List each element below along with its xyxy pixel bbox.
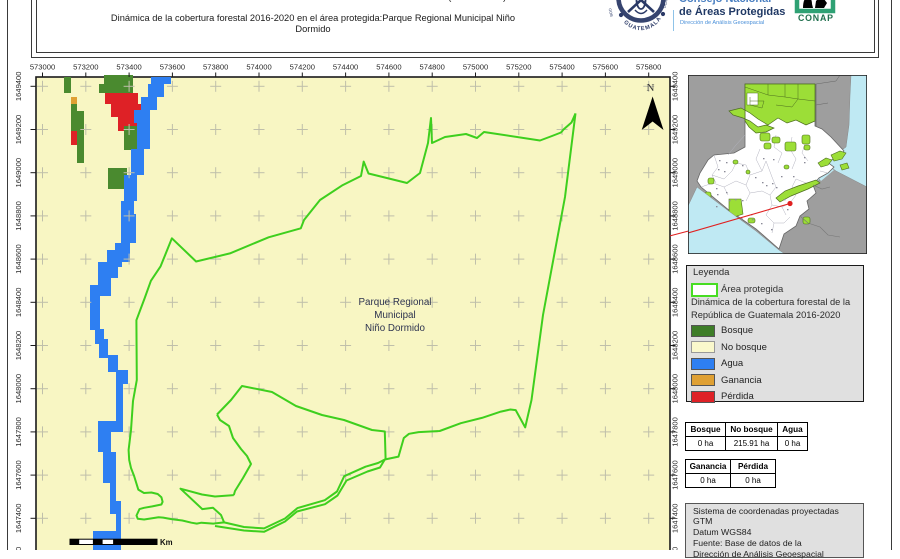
svg-text:575200: 575200 bbox=[506, 63, 531, 72]
svg-text:1647600: 1647600 bbox=[671, 460, 680, 490]
svg-text:1649000: 1649000 bbox=[14, 158, 23, 188]
svg-text:1648200: 1648200 bbox=[14, 331, 23, 361]
svg-text:OCA: OCA bbox=[663, 0, 669, 9]
svg-text:573800: 573800 bbox=[203, 63, 228, 72]
svg-text:574200: 574200 bbox=[290, 63, 315, 72]
svg-text:574400: 574400 bbox=[333, 63, 358, 72]
svg-text:573400: 573400 bbox=[116, 63, 141, 72]
svg-text:574600: 574600 bbox=[376, 63, 401, 72]
svg-text:1647600: 1647600 bbox=[14, 460, 23, 490]
svg-text:1648600: 1648600 bbox=[671, 244, 680, 274]
svg-text:1647400: 1647400 bbox=[671, 504, 680, 534]
svg-text:1648600: 1648600 bbox=[14, 244, 23, 274]
svg-text:1649400: 1649400 bbox=[671, 72, 680, 102]
svg-text:573200: 573200 bbox=[73, 63, 98, 72]
svg-text:Municipal: Municipal bbox=[374, 310, 415, 321]
svg-text:1647800: 1647800 bbox=[14, 417, 23, 447]
svg-text:CONAP: CONAP bbox=[798, 13, 834, 23]
svg-text:Niño Dormido: Niño Dormido bbox=[365, 323, 425, 334]
svg-text:575400: 575400 bbox=[549, 63, 574, 72]
svg-text:573600: 573600 bbox=[160, 63, 185, 72]
svg-text:1648000: 1648000 bbox=[671, 374, 680, 404]
svg-text:1648400: 1648400 bbox=[671, 288, 680, 318]
svg-text:573000: 573000 bbox=[30, 63, 55, 72]
svg-text:575600: 575600 bbox=[593, 63, 618, 72]
svg-text:575800: 575800 bbox=[636, 63, 661, 72]
svg-text:1648400: 1648400 bbox=[14, 288, 23, 318]
svg-text:Km: Km bbox=[160, 538, 173, 547]
svg-text:1649400: 1649400 bbox=[14, 72, 23, 102]
svg-text:Parque Regional: Parque Regional bbox=[359, 297, 432, 308]
svg-text:N: N bbox=[647, 82, 655, 94]
svg-text:1649200: 1649200 bbox=[14, 115, 23, 145]
svg-text:GOB: GOB bbox=[608, 8, 613, 18]
svg-text:1648200: 1648200 bbox=[671, 331, 680, 361]
svg-text:574800: 574800 bbox=[420, 63, 445, 72]
svg-text:1649000: 1649000 bbox=[671, 158, 680, 188]
svg-text:1648000: 1648000 bbox=[14, 374, 23, 404]
svg-text:575000: 575000 bbox=[463, 63, 488, 72]
svg-text:1647400: 1647400 bbox=[14, 504, 23, 534]
svg-text:1649200: 1649200 bbox=[671, 115, 680, 145]
svg-text:1648800: 1648800 bbox=[14, 201, 23, 231]
svg-text:574000: 574000 bbox=[246, 63, 271, 72]
svg-text:1647800: 1647800 bbox=[671, 417, 680, 447]
